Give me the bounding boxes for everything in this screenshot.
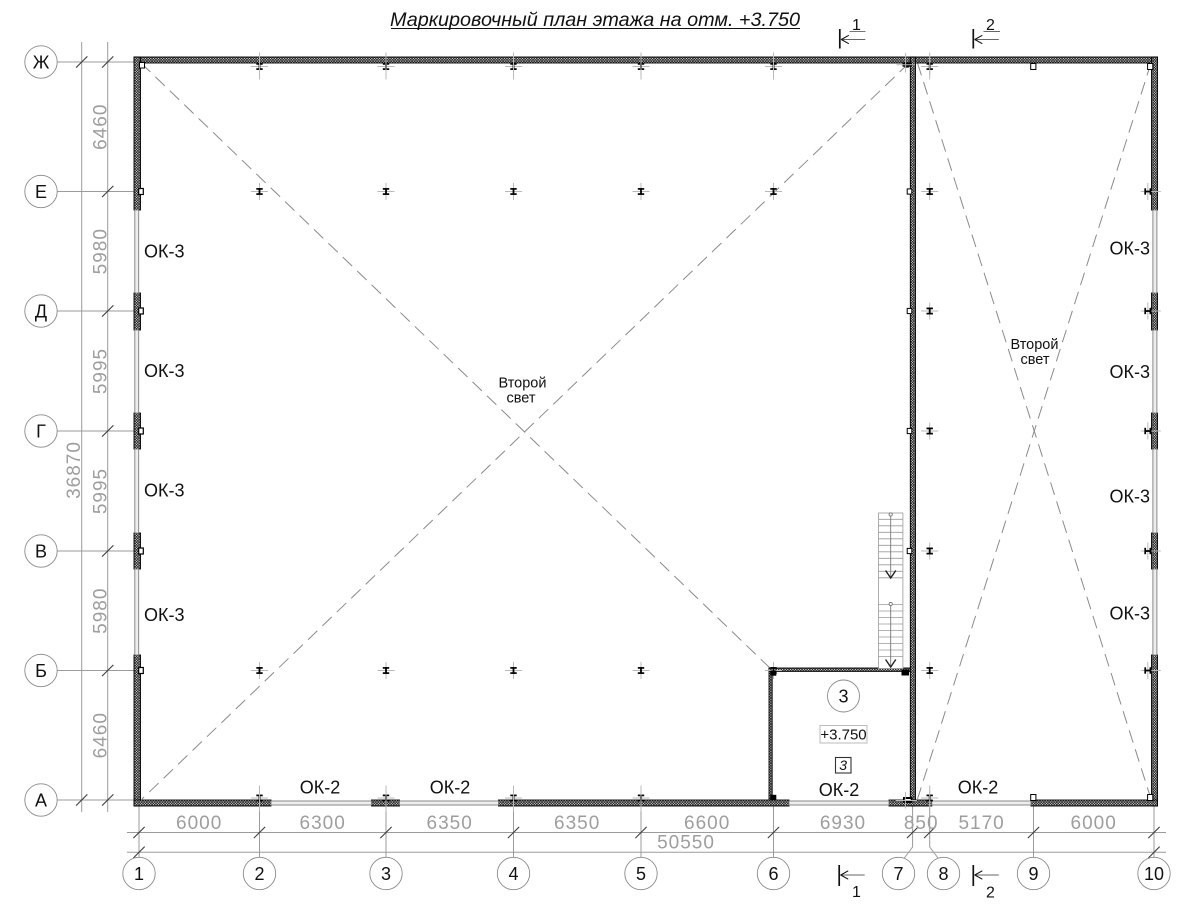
svg-text:6000: 6000	[176, 813, 222, 834]
svg-text:Г: Г	[36, 421, 46, 441]
svg-text:4: 4	[508, 864, 518, 884]
svg-text:50550: 50550	[657, 833, 715, 854]
svg-text:свет: свет	[506, 391, 535, 407]
svg-text:850: 850	[904, 813, 939, 834]
svg-text:8: 8	[938, 864, 948, 884]
svg-text:6460: 6460	[90, 712, 111, 758]
svg-text:ОК-3: ОК-3	[1110, 604, 1151, 624]
svg-text:1: 1	[852, 884, 861, 900]
svg-text:ОК-3: ОК-3	[1110, 487, 1151, 507]
svg-text:6000: 6000	[1071, 813, 1117, 834]
svg-text:10: 10	[1144, 864, 1164, 884]
svg-text:Е: Е	[35, 182, 47, 202]
svg-text:ОК-3: ОК-3	[1110, 362, 1151, 382]
svg-text:5995: 5995	[90, 348, 111, 394]
svg-text:1: 1	[134, 864, 144, 884]
svg-text:3: 3	[838, 686, 848, 706]
svg-text:Маркировочный план этажа на от: Маркировочный план этажа на отм. +3.750	[390, 9, 800, 31]
svg-text:В: В	[35, 541, 47, 561]
svg-text:ОК-3: ОК-3	[1110, 239, 1151, 259]
svg-text:6460: 6460	[90, 104, 111, 150]
svg-text:ОК-2: ОК-2	[300, 778, 341, 798]
svg-text:5980: 5980	[90, 588, 111, 634]
svg-text:6930: 6930	[820, 813, 866, 834]
svg-text:Ж: Ж	[33, 52, 50, 72]
svg-text:6350: 6350	[427, 813, 473, 834]
svg-text:5980: 5980	[90, 228, 111, 274]
svg-text:Второй: Второй	[1011, 337, 1059, 353]
svg-text:3: 3	[381, 864, 391, 884]
svg-text:5995: 5995	[90, 468, 111, 514]
svg-text:5: 5	[636, 864, 646, 884]
svg-text:ОК-3: ОК-3	[144, 481, 185, 501]
svg-text:ОК-3: ОК-3	[144, 605, 185, 625]
svg-text:2: 2	[254, 864, 264, 884]
svg-text:ОК-2: ОК-2	[430, 778, 471, 798]
svg-text:ОК-2: ОК-2	[958, 778, 999, 798]
svg-text:Д: Д	[35, 301, 47, 321]
svg-text:А: А	[35, 790, 47, 810]
svg-text:7: 7	[893, 864, 903, 884]
svg-text:9: 9	[1028, 864, 1038, 884]
svg-text:2: 2	[986, 885, 995, 901]
svg-text:6600: 6600	[684, 813, 730, 834]
svg-text:6: 6	[768, 864, 778, 884]
svg-text:ОК-3: ОК-3	[144, 242, 185, 262]
svg-text:36870: 36870	[64, 441, 85, 499]
svg-text:3: 3	[839, 757, 847, 773]
svg-text:ОК-2: ОК-2	[819, 780, 860, 800]
svg-text:6300: 6300	[300, 813, 346, 834]
svg-text:ОК-3: ОК-3	[144, 361, 185, 381]
svg-text:6350: 6350	[554, 813, 600, 834]
svg-text:Б: Б	[35, 661, 47, 681]
svg-text:+3.750: +3.750	[820, 727, 866, 744]
svg-text:Второй: Второй	[499, 376, 547, 392]
svg-text:свет: свет	[1020, 352, 1049, 368]
svg-text:5170: 5170	[958, 813, 1004, 834]
